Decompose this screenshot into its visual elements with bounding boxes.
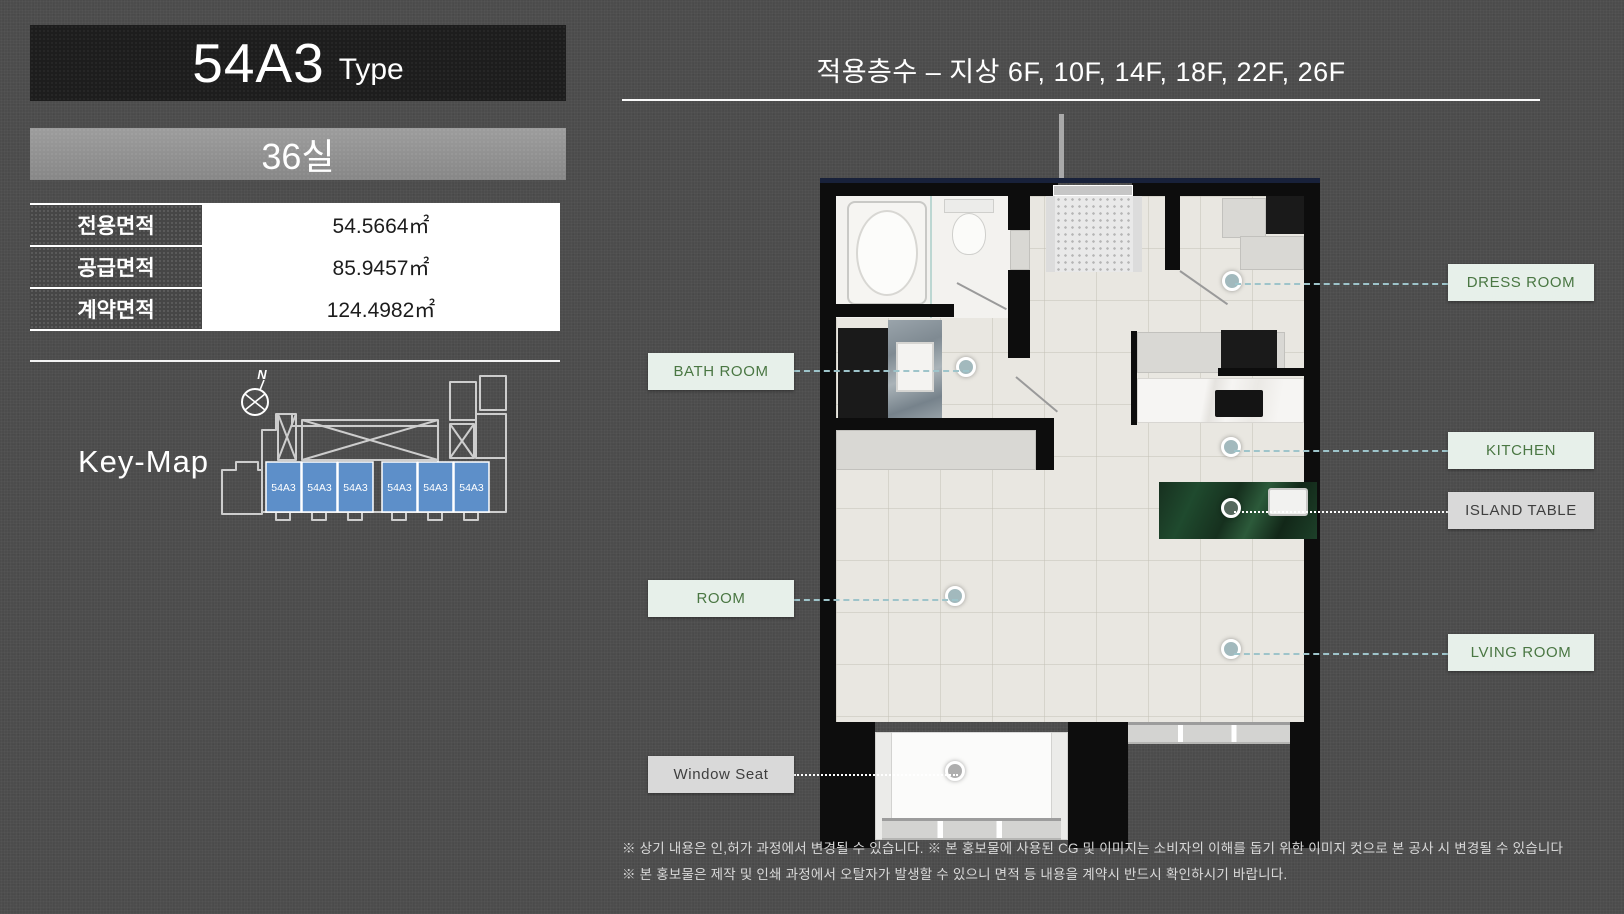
closet: [838, 328, 888, 418]
leader-line-kitchen: [1234, 450, 1448, 452]
room-cabinet: [836, 430, 1036, 470]
wall: [1008, 270, 1030, 358]
kitchen-marker-dot: [1221, 437, 1241, 457]
leader-line-dress-room: [1235, 283, 1448, 285]
area-value-supply: 85.9457㎡: [202, 247, 560, 287]
area-label-supply: 공급면적: [30, 247, 202, 287]
island-table-marker-dot: [1221, 498, 1241, 518]
wall: [836, 304, 954, 317]
wall: [836, 418, 1054, 430]
unit-count-text: 36실: [261, 128, 334, 180]
room-marker-dot: [945, 586, 965, 606]
wall: [1068, 722, 1128, 848]
keymap-building-outline: 54A3 54A3 54A3 54A3 54A3 54A3: [212, 372, 516, 530]
area-value-exclusive: 54.5664㎡: [202, 205, 560, 245]
entrance-canopy-line: [1059, 114, 1064, 180]
window-seat-marker-dot: [945, 761, 965, 781]
wall: [1036, 430, 1054, 470]
applicable-floors-title: 적용층수 – 지상 6F, 10F, 14F, 18F, 22F, 26F: [622, 50, 1540, 89]
shower-glass-partition: [930, 196, 932, 318]
unit-type-code: 54A3: [192, 31, 324, 95]
keymap-unit-label: 54A3: [387, 482, 412, 494]
living-room-window: [1128, 722, 1290, 744]
label-island-table: ISLAND TABLE: [1448, 492, 1594, 529]
header-underline: [622, 99, 1540, 101]
bathtub: [847, 201, 927, 305]
keymap-unit-label: 54A3: [459, 482, 484, 494]
toilet: [952, 213, 986, 255]
divider-line: [30, 360, 560, 362]
bath-room-marker-dot: [956, 357, 976, 377]
wall: [1290, 722, 1320, 848]
dress-room-marker-dot: [1222, 271, 1242, 291]
leader-line-living-room: [1234, 653, 1448, 655]
area-label-contract: 계약면적: [30, 289, 202, 329]
disclaimer-line-1: ※ 상기 내용은 인,허가 과정에서 변경될 수 있습니다. ※ 본 홍보물에 …: [622, 837, 1563, 857]
wall: [1218, 368, 1304, 376]
label-room: ROOM: [648, 580, 794, 617]
floor-plan-poster: 54A3 Type 36실 전용면적 54.5664㎡ 공급면적 85.9457…: [0, 0, 1624, 914]
dress-cabinet: [1222, 198, 1266, 238]
wall: [820, 722, 875, 848]
label-bath-room: BATH ROOM: [648, 353, 794, 390]
label-window-seat: Window Seat: [648, 756, 794, 793]
hall-shelf: [1010, 230, 1030, 270]
unit-count-banner: 36실: [30, 128, 566, 180]
cooktop: [1215, 390, 1263, 417]
table-row: 전용면적 54.5664㎡: [30, 205, 560, 247]
label-kitchen: KITCHEN: [1448, 432, 1594, 469]
wall: [1304, 183, 1320, 739]
floor-plan: [820, 178, 1320, 848]
leader-line-island-table: [1234, 511, 1448, 513]
entrance-tile: [1046, 196, 1142, 272]
disclaimer-line-2: ※ 본 홍보물은 제작 및 인쇄 과정에서 오탈자가 발생할 수 있으니 면적 …: [622, 863, 1287, 883]
wall: [1132, 183, 1320, 196]
toilet-tank: [944, 199, 994, 213]
closet: [1266, 196, 1304, 234]
keymap-unit-label: 54A3: [307, 482, 332, 494]
leader-line-room: [794, 599, 958, 601]
wall: [1165, 196, 1180, 270]
table-row: 공급면적 85.9457㎡: [30, 247, 560, 289]
leader-line-bath-room: [794, 370, 969, 372]
dress-cabinet: [1240, 236, 1304, 270]
area-table: 전용면적 54.5664㎡ 공급면적 85.9457㎡ 계약면적 124.498…: [30, 203, 560, 331]
entrance-threshold: [1053, 185, 1133, 196]
label-living-room: LVING ROOM: [1448, 634, 1594, 671]
keymap-highlighted-units: 54A3 54A3 54A3 54A3 54A3 54A3: [266, 462, 489, 512]
living-room-marker-dot: [1221, 639, 1241, 659]
area-value-contract: 124.4982㎡: [202, 289, 560, 329]
wall: [820, 183, 1058, 196]
keymap-unit-label: 54A3: [343, 482, 368, 494]
keymap-unit-label: 54A3: [423, 482, 448, 494]
unit-type-title-box: 54A3 Type: [30, 25, 566, 101]
closet: [1221, 330, 1277, 368]
table-row: 계약면적 124.4982㎡: [30, 289, 560, 331]
vanity-sink: [896, 342, 934, 392]
leader-line-window-seat: [794, 774, 958, 776]
label-dress-room: DRESS ROOM: [1448, 264, 1594, 301]
area-label-exclusive: 전용면적: [30, 205, 202, 245]
keymap-title: Key-Map: [78, 444, 209, 480]
wall: [1008, 196, 1030, 230]
keymap-unit-label: 54A3: [271, 482, 296, 494]
unit-type-suffix: Type: [339, 53, 404, 87]
